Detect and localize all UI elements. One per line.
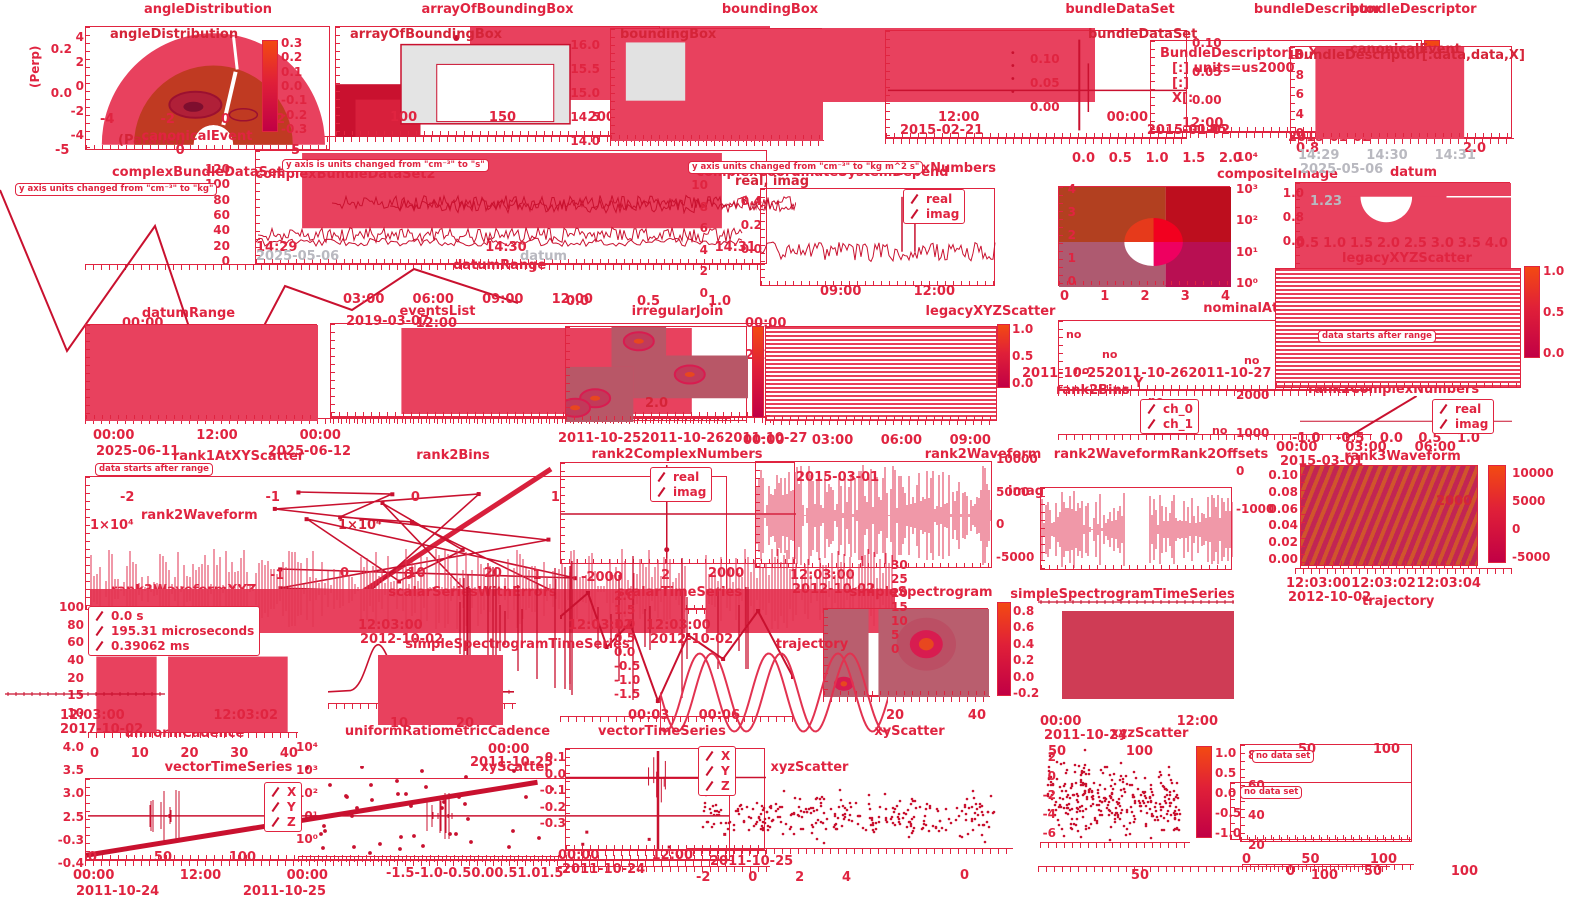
tick-label: 06:00 [413, 292, 454, 307]
tick-label: 2.5 [63, 810, 84, 824]
tick-label: -4 [100, 112, 114, 127]
tick-label: 0.2 [1013, 653, 1034, 667]
xyzScatterA-date-axis-labels: 2011-10-25 [710, 854, 802, 869]
tick-label: 10 [691, 178, 708, 192]
tick-label: 30 [891, 558, 908, 572]
tick-label: 150 [489, 110, 516, 125]
tick-label: 12:00 [1182, 116, 1223, 131]
tick-label: 0.0 [281, 79, 302, 93]
nominalAtScatter-nominal-label: no [1212, 424, 1227, 437]
tick-label: 12:00 [652, 848, 693, 863]
boundingBox-plot[interactable] [610, 28, 822, 140]
tick-label: 12:03:00 [60, 708, 125, 723]
tick-label: 100 [1126, 744, 1153, 759]
tick-label: -0.2 [1013, 686, 1039, 700]
tick-label: -0.1 [540, 783, 566, 797]
tick-label: 00:00 [1040, 714, 1081, 729]
legacyXYZScatter-title: legacyXYZScatter [908, 304, 1073, 319]
tick-label: 0 [90, 746, 99, 761]
datum-time-axis-labels: 14:2914:3014:31 [1298, 148, 1476, 163]
tick-label: 10 [1287, 48, 1304, 62]
tick-label: 0.5 [1215, 766, 1236, 780]
tick-label: 09:00 [950, 433, 991, 448]
tick-label: 2025-05-06 [1300, 162, 1383, 177]
arrayOfBoundingBox-y-axis-ticks: 0.20.0 [38, 42, 72, 100]
complexNumbers-legend-entry: imag [926, 207, 959, 221]
tick-label: 20 [891, 586, 908, 600]
datumRange-plot[interactable] [85, 324, 317, 420]
axis-ticks [1295, 568, 1512, 574]
rank2ComplexNumbersB-legend-entry: imag [1455, 417, 1488, 431]
simpleSpectrogram-date-axis-labels: 2012-10-02 [792, 582, 877, 597]
nominalAtScatter-nominal-label: no [1074, 364, 1089, 377]
bundleDescriptorB-y-axis-ticks: 108640 [1270, 48, 1304, 140]
xyzScatterB-x-axis-ticks: 050100 [960, 868, 1338, 883]
nominalAtScatter-nominal-label: no [1244, 354, 1259, 367]
simpleSpectrogramTimeSeriesA-plot-2[interactable] [378, 655, 503, 725]
xyzScatterA-legend-entry: X [721, 749, 730, 763]
stray-label: 2011-10-25 [470, 755, 553, 770]
tick-label: 1.0 [1283, 186, 1304, 200]
xyzScatterA-title: xyzScatter [752, 760, 867, 775]
tick-label: 5 [891, 628, 899, 642]
axis-ticks [766, 416, 996, 420]
tick-label: 12:00 [914, 284, 955, 299]
vectorTimeSeries-title: vectorTimeSeries [136, 760, 321, 775]
rank1AlongTrajectory-colorbar-ticks: 1.00.50.0 [1543, 264, 1569, 360]
rank1AlongTrajectory-warning-chip: data starts after range [1318, 330, 1436, 343]
tick-label: 1.0 [1543, 264, 1564, 278]
tick-label: 16.0 [570, 38, 600, 52]
rank3Waveform-y-axis-ticks: 0.100.080.060.040.020.00 [1264, 468, 1298, 566]
line-swatch-icon [658, 472, 666, 482]
xyScatterA-plot-graphic [298, 766, 560, 856]
tick-label: 1.0 [708, 294, 731, 309]
tick-label: 3.5 [63, 763, 84, 777]
tick-label: 0 [411, 490, 420, 505]
tick-label: 2.0 [1219, 151, 1242, 166]
axis-ticks [611, 135, 821, 139]
tick-label: 0.0 [1072, 151, 1095, 166]
line-swatch-icon [706, 766, 714, 776]
tick-label: 0.1 [281, 65, 302, 79]
tick-label: 2 [76, 55, 84, 69]
tick-label: -2 [71, 104, 84, 118]
tick-label: 0.4 [1013, 637, 1034, 651]
rank3Waveform-time-axis-labels: 12:03:0012:03:0212:03:04 [1286, 576, 1481, 591]
tick-label: 10¹ [1236, 245, 1258, 259]
compositeImage-x2-axis-ticks: 0.00.51.01.52.0 [1072, 151, 1242, 166]
tick-label: 0.8 [1283, 210, 1304, 224]
stray-label: 12:03:00 [646, 618, 711, 633]
rank2ComplexNumbersB-legend[interactable]: realimag [1432, 399, 1494, 434]
line-swatch-icon [96, 641, 104, 651]
tick-label: 40 [968, 708, 986, 723]
xyzScatterB-colorbar [1196, 746, 1212, 838]
datum-x-axis-ticks: 0.51.01.52.02.53.03.54.0 [1296, 236, 1508, 251]
axis-ticks [886, 31, 890, 137]
vectorTimeSeries-legend-entry: X [287, 785, 296, 799]
tick-label: 0.5 [1109, 151, 1132, 166]
tick-label: 2011-10-26 [641, 431, 724, 446]
angleDistribution-inner-title: angleDistribution [110, 27, 238, 42]
axis-ticks [336, 27, 340, 135]
tick-label: 2.5 [1404, 236, 1427, 251]
tick-label: 0.5 [1012, 349, 1033, 363]
simpleSpectrogram-time-axis-labels: 12:03:00 [790, 568, 865, 583]
complexNumbers-legend[interactable]: realimag [903, 189, 965, 224]
tick-label: 0 [176, 143, 185, 158]
tick-label: 3.5 [1458, 236, 1481, 251]
tick-label: -2 [696, 870, 710, 885]
line-swatch-icon [658, 487, 666, 497]
simpleSpectrogramTimeSeriesB-plot-graphic [1038, 597, 1234, 607]
nominalAtScatter-date-axis-labels: 2011-10-252011-10-262011-10-27 [1022, 366, 1237, 381]
tick-label: -1.5 [386, 866, 414, 881]
axis-ticks [566, 327, 570, 420]
tick-label: 40 [67, 653, 84, 667]
tick-label: 0.2 [51, 42, 72, 56]
tick-label: 0 [1060, 289, 1069, 304]
bundleDescriptorB-title: bundleDescriptor [1328, 2, 1498, 17]
tick-label: -2 [120, 490, 134, 505]
vectorTimeSeries-time-axis-labels: 00:0012:0000:00 [73, 868, 328, 883]
axis-ticks [1291, 133, 1511, 137]
tick-label: 0.06 [1268, 502, 1298, 516]
tick-label: 100 [59, 600, 84, 614]
tick-label: 1.0 [1145, 151, 1168, 166]
tick-label: 2015-03-01 [1280, 454, 1363, 469]
tick-label: 0.4 [741, 194, 762, 208]
eventsList-date-axis-labels: 2019-03-07 [346, 314, 446, 329]
tick-label: -5000 [1512, 550, 1550, 564]
tick-label: 1.0 [1323, 236, 1346, 251]
tick-label: -1 [265, 490, 279, 505]
boundingBox-y-axis-ticks: 16.015.515.014.514.0 [566, 38, 600, 148]
tick-label: 60 [67, 635, 84, 649]
tick-label: 30 [230, 746, 248, 761]
legacyXYZScatter-plot[interactable] [765, 326, 997, 421]
tick-label: -0.5 [443, 866, 471, 881]
xyzScatterB-plot[interactable] [1040, 748, 1188, 842]
vectorTimeSeries-date-axis-labels: 2011-10-242011-10-25 [76, 884, 326, 899]
tick-label: 20 [484, 566, 502, 581]
tick-label: 20 [67, 671, 84, 685]
xyScatterB-title: xyScatter [862, 724, 957, 739]
tick-label: 0.04 [1268, 518, 1298, 532]
axis-ticks [86, 325, 90, 419]
tick-label: 2 [700, 264, 708, 278]
rank2WaveformRank2Offsets-legend[interactable]: ch_0ch_1 [1140, 399, 1199, 434]
irregularJoin-colorbar [752, 326, 764, 418]
tick-label: 2 [1068, 228, 1076, 242]
vectorTimeSeries-x2-axis-ticks: 010203040 [90, 746, 298, 761]
tick-label: 1.5 [540, 866, 563, 881]
tick-label: 0 [1236, 464, 1244, 478]
stray-label: datumRange [453, 258, 546, 273]
tick-label: 2012-10-02 [1288, 590, 1371, 605]
rank2ComplexNumbersA-legend-entry: imag [673, 485, 706, 499]
stray-label: 2012-10-02 [650, 632, 733, 647]
tick-label: 0.0 [566, 294, 589, 309]
tick-label: 4.0 [63, 740, 84, 754]
xyzScatterA-legend-entry: Y [721, 764, 730, 778]
axis-ticks [86, 779, 90, 859]
tick-label: 0.5 [1296, 236, 1319, 251]
rank3Waveform-plot[interactable] [1300, 465, 1478, 566]
tick-label: 00:03 [628, 708, 669, 723]
tick-label: 0 [1296, 126, 1304, 140]
uniformCadence-y-axis-ticks: 100806040201510 [50, 600, 84, 720]
tick-label: 2011-10-24 [562, 862, 645, 877]
stray-label: 2012-10-02 [360, 632, 443, 647]
noDataSetB-x-axis-ticks: 050100 [1286, 864, 1478, 879]
tick-label: -2 [1043, 788, 1056, 802]
compositeImage-plot[interactable] [1058, 186, 1230, 286]
axis-ticks [1231, 783, 1235, 839]
rank3WaveformXYZ-legend-entry: 0.39062 ms [111, 639, 189, 653]
tick-label: 2.0 [614, 589, 635, 603]
tick-label: 15.5 [570, 62, 600, 76]
tick-label: 12:03:04 [1416, 576, 1481, 591]
tick-label: 2011-10-24 [76, 884, 159, 899]
tick-label: 100 [229, 850, 256, 865]
stray-label: 2025-05-06 [256, 249, 339, 264]
tick-label: 2017-10-02 [60, 722, 143, 737]
line-swatch-icon [911, 194, 919, 204]
tick-label: 8 [1296, 68, 1304, 82]
tick-label: 09:00 [482, 292, 523, 307]
tick-label: 0.8 [1013, 604, 1034, 618]
line-swatch-icon [272, 817, 280, 827]
tick-label: 00:00 [743, 433, 784, 448]
line-swatch-icon [1440, 404, 1448, 414]
angleDistribution-x-axis-ticks: -4-202 [100, 112, 285, 127]
stray-label: 12:03:02 [568, 618, 633, 633]
axis-ticks [566, 749, 570, 849]
tick-label: -1.0 [414, 866, 442, 881]
tick-label: 0 [1048, 769, 1056, 783]
tick-label: 4 [76, 30, 84, 44]
nominalAtScatter-nominal-label: no [1066, 328, 1081, 341]
stray-label: legacyXYZScatter [1342, 251, 1472, 266]
tick-label: 2011-10-26 [1105, 366, 1188, 381]
tick-label: 0.2 [741, 218, 762, 232]
tick-label: 50 [1131, 868, 1149, 883]
xyScatterB-date-axis-labels: 2011-10-24 [562, 862, 654, 877]
tick-label: 4.0 [1485, 236, 1508, 251]
nominalAtScatter-nominal-label: no [1102, 348, 1117, 361]
stray-label: y axis units changed from "cm⁻³" to "kg … [688, 161, 923, 174]
rank1AlongTrajectory-plot[interactable] [1275, 268, 1521, 388]
uniformCadence-time-axis-labels: 12:03:0012:03:02 [60, 708, 278, 723]
tick-label: 12:03:02 [1351, 576, 1416, 591]
compositeImage-y-axis-ticks: 43210 [1042, 182, 1076, 288]
tick-label: 0.5 [1543, 305, 1564, 319]
tick-label: 03:00 [1345, 440, 1386, 455]
tick-label: 0 [340, 566, 349, 581]
tick-label: 12:00 [196, 428, 237, 443]
rank2ComplexNumbersA-title: rank2ComplexNumbers [582, 447, 772, 462]
line-swatch-icon [1148, 419, 1156, 429]
xyzScatterA-x-axis-ticks: -2024 [696, 870, 851, 885]
datumRange-time-axis-labels: 00:0012:0000:00 [93, 428, 341, 443]
rank2WaveformRank2Offsets-legend-entry: ch_1 [1163, 417, 1193, 431]
bundleDataSet-title: bundleDataSet [1035, 2, 1205, 17]
stray-label: rank2Waveform [141, 508, 258, 523]
tick-label: 12:03:00 [790, 568, 855, 583]
irregularJoin-x2-axis-ticks: 0.00.51.0 [566, 294, 731, 309]
tick-label: -2 [160, 112, 174, 127]
tick-label: 20 [180, 746, 198, 761]
tick-label: 0 [1512, 522, 1520, 536]
tick-label: -1.5 [614, 687, 640, 701]
axis-ticks [1231, 835, 1411, 839]
rank2WaveformRank2Offsets-plot-graphic [1041, 488, 1231, 571]
tick-label: -6 [1043, 826, 1056, 840]
tick-label: 03:00 [812, 433, 853, 448]
tick-label: 0.2 [281, 50, 302, 64]
uniformRatiometricCadence-plot-graphic [5, 688, 165, 700]
tick-label: 6 [1296, 87, 1304, 101]
stray-label: trajectory [1362, 594, 1434, 609]
rank2WaveformRank2Offsets-legend-entry: ch_0 [1163, 402, 1193, 416]
tick-label: 10000 [1512, 466, 1554, 480]
rank2Waveform-time-axis-labels: 00:0003:0006:0009:00 [743, 433, 991, 448]
line-swatch-icon [272, 802, 280, 812]
simpleSpectrogram-colorbar-ticks: 0.80.60.40.20.0-0.2 [1013, 604, 1065, 700]
tick-label: 00:00 [1276, 440, 1317, 455]
tick-label: -5 [55, 143, 69, 158]
xyScatterA-plot[interactable] [298, 766, 560, 856]
tick-label: -1 [270, 568, 284, 583]
rank2ComplexNumbersA-legend-entry: real [673, 470, 699, 484]
tick-label: 12:03:02 [213, 708, 278, 723]
noDataSetA-warning-chip: no data set [1252, 750, 1314, 763]
uniformRatiometricCadence-plot[interactable] [5, 688, 165, 700]
tick-label: 0 [891, 642, 899, 656]
tick-label: 14.0 [570, 134, 600, 148]
xyScatterB-time-axis-labels: 00:0012:00 [558, 848, 693, 863]
xyzScatterB-title: xyzScatter [1102, 726, 1197, 741]
line-swatch-icon [1148, 404, 1156, 414]
stray-label: Y [1134, 376, 1143, 391]
stray-label: imag [1008, 484, 1044, 499]
axis-ticks [766, 327, 770, 420]
complexCoordinateSystemDepend-legend-note: real, imag [735, 174, 809, 189]
tick-label: 50 [154, 850, 172, 865]
stray-label: 12:03:00 [358, 618, 423, 633]
tick-label: 2011-10-25 [1022, 366, 1105, 381]
rank1AtXYScatter-title: rank1AtXYScatter [146, 449, 331, 464]
rank3WaveformXYZ-legend[interactable]: 0.0 s195.31 microseconds0.39062 ms [88, 606, 260, 656]
tick-label: 5000 [1512, 494, 1545, 508]
line-swatch-icon [706, 751, 714, 761]
tick-label: 06:00 [1415, 440, 1456, 455]
simpleSpectrogramTimeSeriesB-plot[interactable] [1038, 597, 1234, 607]
tick-label: 1.5 [614, 603, 635, 617]
datumRange-plot-graphic [86, 325, 316, 421]
tick-label: 1 [551, 490, 560, 505]
tick-label: 14.5 [570, 110, 600, 124]
tick-label: 2 [795, 870, 804, 885]
complexBundleDataSet-warning-chip: y axis is units changed from "cm⁻³" to "… [282, 159, 489, 172]
xyzScatterA-legend[interactable]: XYZ [698, 746, 736, 796]
tick-label: 15 [891, 600, 908, 614]
trajectory-y-axis-ticks: 302520151050 [891, 558, 943, 642]
tick-label: -1.0 [614, 673, 640, 687]
tick-label: 20 [886, 708, 904, 723]
stray-label: 1×10⁴ [90, 518, 134, 533]
tick-label: 0.5 [494, 866, 517, 881]
tick-label: 3 [1068, 205, 1076, 219]
axis-ticks [1276, 383, 1520, 387]
compositeImage-plot-graphic [1059, 187, 1229, 287]
irregularJoin-inner-label: 2.0 [645, 396, 668, 411]
axis-ticks [1301, 466, 1305, 565]
tick-label: 1.5 [1350, 236, 1373, 251]
simpleSpectrogram-x-axis-ticks: 2040 [886, 708, 986, 723]
tick-label: 06:00 [881, 433, 922, 448]
rank2ComplexNumbersA-legend[interactable]: realimag [650, 467, 712, 502]
axis-ticks [1301, 561, 1477, 565]
tick-label: 8 [700, 200, 708, 214]
tick-label: 4 [1296, 107, 1304, 121]
stray-label: -2000 [581, 570, 623, 585]
tick-label: 0.00 [1268, 552, 1298, 566]
tick-label: 12:03:00 [1286, 576, 1351, 591]
tick-label: 0.05 [1030, 76, 1060, 90]
tick-label: 100 [1373, 742, 1400, 757]
axis-ticks [331, 324, 335, 416]
vectorTimeSeries-legend[interactable]: XYZ [264, 782, 302, 832]
bundleDescriptorB-inner-label: canonicalEvent [1350, 42, 1461, 57]
uniformCadence-date-axis-labels: 2017-10-02 [60, 722, 142, 737]
xyzScatterA-legend-entry: Z [721, 779, 730, 793]
tick-label: 3.0 [63, 786, 84, 800]
axis-ticks [611, 29, 615, 139]
tick-label: 100 [1451, 864, 1478, 879]
tick-label: 2.0 [1377, 236, 1400, 251]
complexNumbers-time-axis-labels: 09:0012:00 [820, 284, 955, 299]
legacyXYZScatter-colorbar [997, 324, 1010, 388]
tick-label: -0.5 [614, 659, 640, 673]
tick-label: 10 [131, 746, 149, 761]
angleDistribution-colorbar-ticks: 0.30.20.10.0-0.1-0.2-0.3 [281, 36, 333, 136]
line-swatch-icon [1440, 419, 1448, 429]
tick-label: 2015-02-21 [900, 123, 983, 138]
simpleSpectrogramTimeSeriesB-plot-2[interactable] [1062, 611, 1234, 699]
tick-label: 10⁴ [296, 740, 318, 754]
axis-ticks [1040, 842, 1190, 848]
tick-label: 00:00 [93, 428, 134, 443]
tick-label: 0.0 [1543, 346, 1564, 360]
tick-label: 2 [1140, 289, 1149, 304]
datum-inner-label: 1.23 [1310, 194, 1342, 209]
stray-label: 2000 [708, 566, 744, 581]
rank1AlongTrajectory-date-axis-labels: 2015-03-01 [1280, 454, 1372, 469]
line-swatch-icon [706, 781, 714, 791]
stray-label: vectorTimeSeries [598, 724, 726, 739]
tick-label: -0.3 [540, 816, 566, 830]
tick-label: 2000 [1236, 388, 1269, 402]
rank2WaveformRank2Offsets-plot[interactable] [1040, 487, 1232, 570]
tick-label: 10⁰ [1236, 276, 1258, 290]
tick-label: 0.10 [1268, 468, 1298, 482]
simpleSpectrogram-colorbar [997, 602, 1011, 696]
scalarSeriesWithErrors-x2-axis-ticks: 01020 [340, 566, 502, 581]
tick-label: 1 [1100, 289, 1109, 304]
